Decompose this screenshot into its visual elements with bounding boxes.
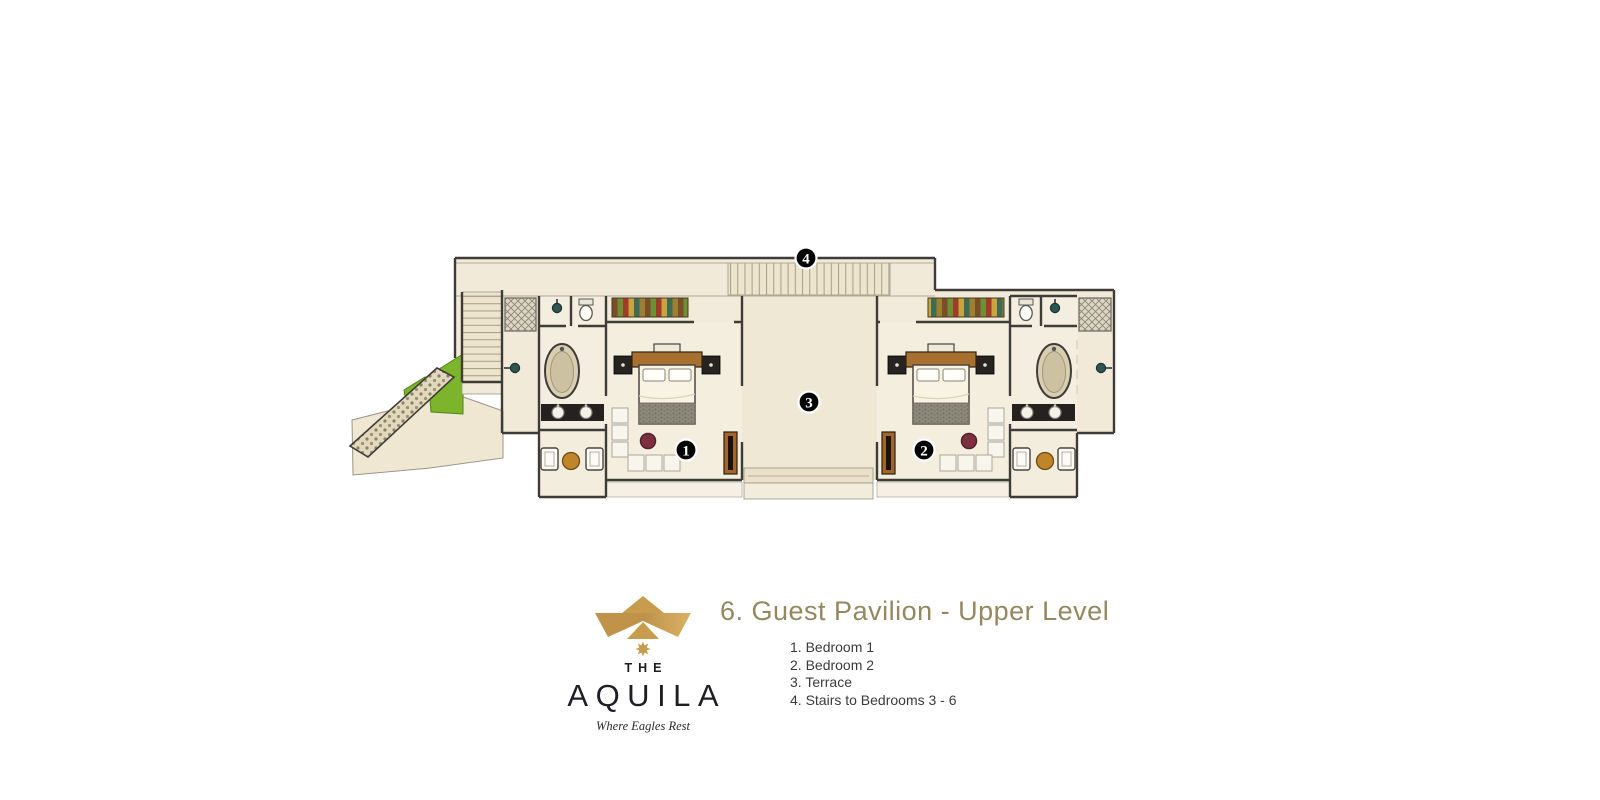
wardrobe-runner-2 (928, 298, 1004, 317)
toilet (1020, 306, 1032, 321)
side-table (563, 453, 580, 470)
svg-text:2: 2 (920, 443, 928, 459)
plan-title: 6. Guest Pavilion - Upper Level (720, 596, 1109, 627)
legend-item-terrace: 3. Terrace (790, 674, 957, 692)
wardrobe-runner-1 (612, 298, 688, 317)
svg-text:4: 4 (802, 251, 810, 267)
logo-the: THE (555, 661, 731, 675)
plan-legend: 1. Bedroom 1 2. Bedroom 2 3. Terrace 4. … (790, 639, 957, 709)
terrace-steps (744, 468, 873, 499)
eagle-logo-icon (555, 583, 731, 657)
outdoor-shower-left (505, 298, 536, 331)
svg-text:3: 3 (805, 395, 813, 411)
pouf-1 (641, 434, 656, 449)
legend-item-bedroom-2: 2. Bedroom 2 (790, 657, 957, 675)
badge-stairs: 4 (796, 248, 817, 269)
terrace-floor (742, 296, 877, 480)
svg-text:1: 1 (682, 443, 690, 459)
side-staircase (462, 292, 502, 394)
toilet (580, 306, 592, 321)
side-table (1037, 453, 1054, 470)
shower-icon (1050, 303, 1059, 312)
outdoor-shower-right (1079, 298, 1111, 331)
floor-plan-page: 1 2 3 4 (0, 0, 1600, 800)
bench-2 (882, 432, 895, 474)
badge-bedroom-1: 1 (676, 440, 697, 461)
badge-bedroom-2: 2 (914, 440, 935, 461)
logo-name: AQUILA (555, 678, 731, 714)
pouf-2 (962, 434, 977, 449)
bench-1 (724, 432, 737, 474)
shower-icon (552, 303, 561, 312)
logo-tagline: Where Eagles Rest (555, 719, 731, 734)
brand-logo: THE AQUILA Where Eagles Rest (555, 583, 731, 734)
vanity (541, 404, 604, 421)
legend-item-bedroom-1: 1. Bedroom 1 (790, 639, 957, 657)
badge-terrace: 3 (799, 392, 820, 413)
legend-item-stairs: 4. Stairs to Bedrooms 3 - 6 (790, 692, 957, 710)
